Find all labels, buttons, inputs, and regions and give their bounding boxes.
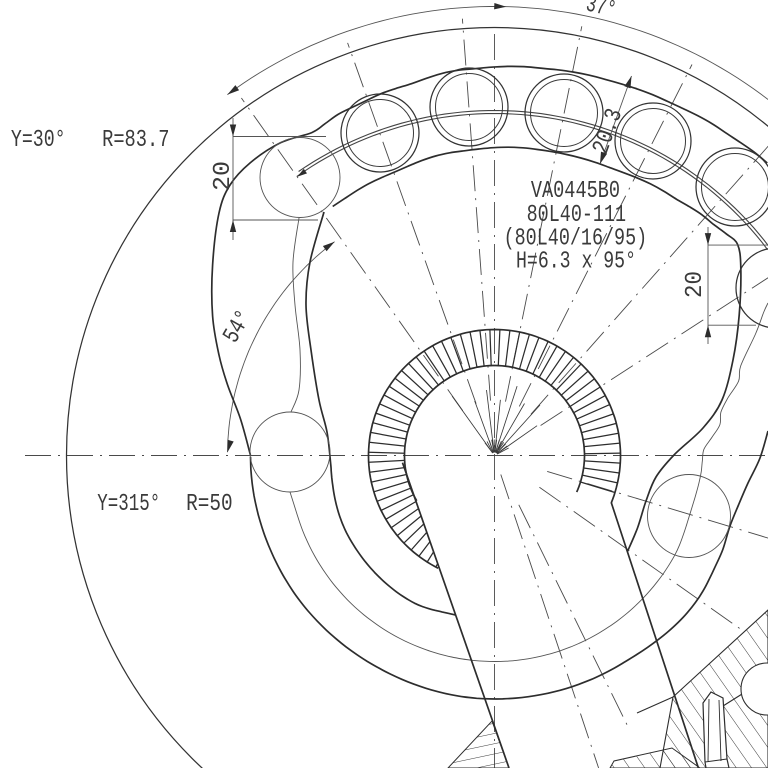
svg-text:R=83.7: R=83.7 [102,127,169,154]
svg-text:H=6.3 x 95°: H=6.3 x 95° [516,249,636,276]
svg-text:37°: 37° [583,0,618,25]
svg-text:20: 20 [682,271,709,298]
svg-text:Y=30°: Y=30° [11,127,66,154]
svg-text:20: 20 [210,161,237,191]
svg-text:R=50: R=50 [186,491,233,518]
svg-text:Y=315°: Y=315° [97,491,160,518]
svg-text:VA0445B0: VA0445B0 [531,178,620,205]
svg-text:20.3: 20.3 [588,105,629,157]
svg-text:54°: 54° [219,306,259,348]
